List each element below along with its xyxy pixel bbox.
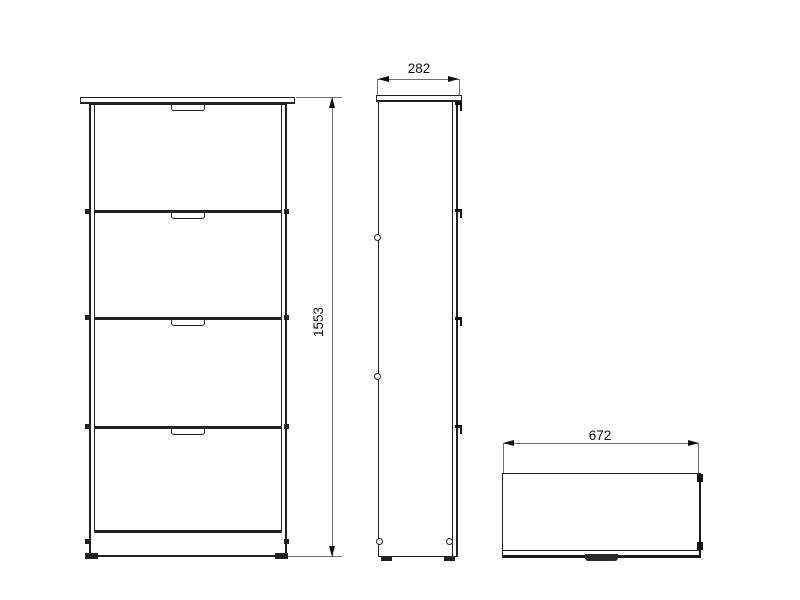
drawer-handle-notch-2 [171,213,205,219]
front-fitting-dot [284,209,289,214]
depth-extension-line-right [459,79,460,95]
front-view-body [89,103,287,557]
front-fitting-dot [284,539,289,544]
side-hinge-hook [455,209,462,218]
dimension-arrow-right-icon [448,76,459,82]
side-fitting-circle [446,538,453,545]
front-foot-left [85,553,98,559]
plan-corner-fitting-tick [697,542,703,550]
side-view-front-edge-line [452,102,453,556]
side-hinge-hook [455,102,462,111]
depth-extension-line-left [377,79,378,95]
front-fitting-dot [284,424,289,429]
side-fitting-circle [374,373,381,380]
side-hinge-hook [455,317,462,326]
dimension-arrow-down-icon [329,546,335,557]
drawer-front-3 [95,317,281,426]
front-fitting-dot [85,539,90,544]
drawer-handle-notch-3 [171,320,205,326]
front-fitting-dot [85,209,90,214]
front-foot-right [275,553,288,559]
technical-drawing-canvas: 1553 282 672 [0,0,800,600]
depth-dimension-line [378,79,459,80]
height-dimension-label: 1553 [288,292,348,352]
depth-dimension-label: 282 [389,61,449,76]
drawer-handle-notch-1 [171,105,205,111]
dimension-arrow-left-icon [503,440,514,446]
plan-view-body [502,473,701,558]
side-foot-right [444,556,455,561]
drawer-front-2 [95,210,281,317]
front-view-drawer-stack [94,105,282,533]
side-hinge-hook [455,425,462,434]
height-extension-line-top [296,97,342,98]
width-extension-line-right [698,443,699,473]
plan-view-front-edge-line [503,550,699,551]
drawer-handle-notch-4 [171,429,205,435]
plan-corner-fitting-tick [697,474,703,482]
width-dimension-label: 672 [560,428,640,443]
drawer-front-4 [95,426,281,530]
side-fitting-circle [376,538,383,545]
plan-view-handle-notch [585,554,618,561]
front-fitting-dot [85,315,90,320]
front-fitting-dot [85,424,90,429]
dimension-arrow-left-icon [378,76,389,82]
drawer-front-1 [95,105,281,210]
width-dimension-line [503,443,699,444]
side-foot-left [381,556,392,561]
width-extension-line-left [503,443,504,473]
side-view-body [378,101,458,557]
side-fitting-circle [374,234,381,241]
dimension-arrow-up-icon [329,97,335,108]
